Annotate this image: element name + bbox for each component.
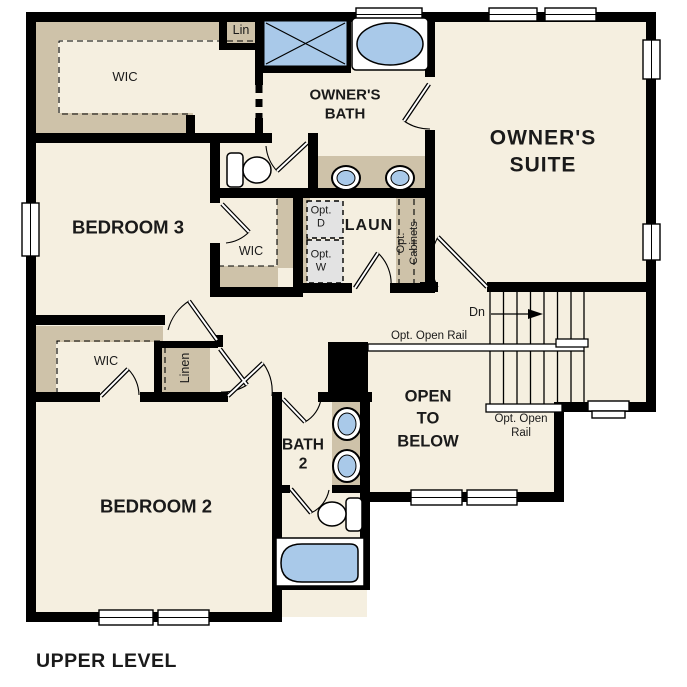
wall-segment	[222, 43, 258, 50]
wic3-shelf-right	[277, 198, 293, 268]
wall-segment	[154, 341, 162, 398]
wall-segment	[554, 402, 564, 502]
wall-segment	[332, 485, 370, 493]
wall-segment	[210, 243, 220, 290]
label-opt-dryer: Opt. D	[311, 204, 332, 229]
wic3-shelf-bottom	[218, 266, 278, 287]
wall-segment	[272, 485, 290, 493]
wic2-shelf-top	[36, 326, 163, 342]
floor-plan-upper-level: OWNER'S SUITE OWNER'S BATH BEDROOM 3 BED…	[0, 0, 687, 687]
stair-rail-return	[556, 339, 588, 347]
room-label-bedroom3: BEDROOM 3	[72, 215, 184, 238]
wall-segment	[186, 115, 195, 143]
wall-segment	[210, 133, 220, 203]
room-label-bedroom2: BEDROOM 2	[100, 494, 212, 517]
room-label-owners-wic: WIC	[112, 69, 137, 85]
wall-segment	[425, 130, 435, 292]
wall-segment	[390, 283, 435, 293]
label-opt-cabinets: Opt. Cabinets	[395, 221, 421, 264]
wall-segment	[210, 287, 303, 297]
label-stairs-down: Dn	[469, 305, 485, 321]
wall-segment	[362, 492, 564, 502]
label-opt-washer: Opt. W	[311, 248, 332, 273]
wall-segment	[293, 283, 352, 293]
stair-rail-bottom	[486, 404, 562, 412]
wall-segment	[293, 198, 303, 287]
wall-segment	[26, 392, 100, 402]
label-opt-open-rail-upper: Opt. Open Rail	[391, 329, 467, 343]
room-label-bedroom2-wic: WIC	[94, 354, 118, 370]
room-label-owners-suite: OWNER'S SUITE	[490, 125, 597, 180]
room-label-lin-closet: Lin	[233, 23, 250, 39]
window	[592, 411, 625, 418]
owners-wic-shelf-top	[36, 20, 223, 40]
room-label-bath2: BATH 2	[282, 436, 324, 475]
room-label-laundry: LAUN	[345, 216, 393, 236]
wall-segment	[154, 341, 218, 348]
owners-bathtub-icon	[352, 18, 428, 70]
room-label-bedroom3-wic: WIC	[239, 244, 263, 260]
wall-segment	[26, 612, 282, 622]
label-opt-open-rail-lower: Opt. Open Rail	[494, 413, 547, 441]
wall-segment	[487, 282, 656, 292]
page-title: UPPER LEVEL	[36, 649, 177, 673]
room-label-owners-bath: OWNER'S BATH	[309, 86, 380, 124]
bath2-bathtub-icon	[276, 538, 364, 586]
owners-wic-shelf-bottom	[36, 113, 193, 135]
wall-segment	[140, 392, 228, 402]
stair-rail-middle	[368, 344, 584, 351]
wall-segment	[26, 315, 165, 325]
window	[588, 401, 629, 411]
wall-segment	[26, 133, 272, 143]
room-label-linen-closet: Linen	[178, 353, 194, 384]
room-label-open-to-below: OPEN TO BELOW	[397, 386, 458, 453]
wall-chase	[328, 342, 368, 397]
